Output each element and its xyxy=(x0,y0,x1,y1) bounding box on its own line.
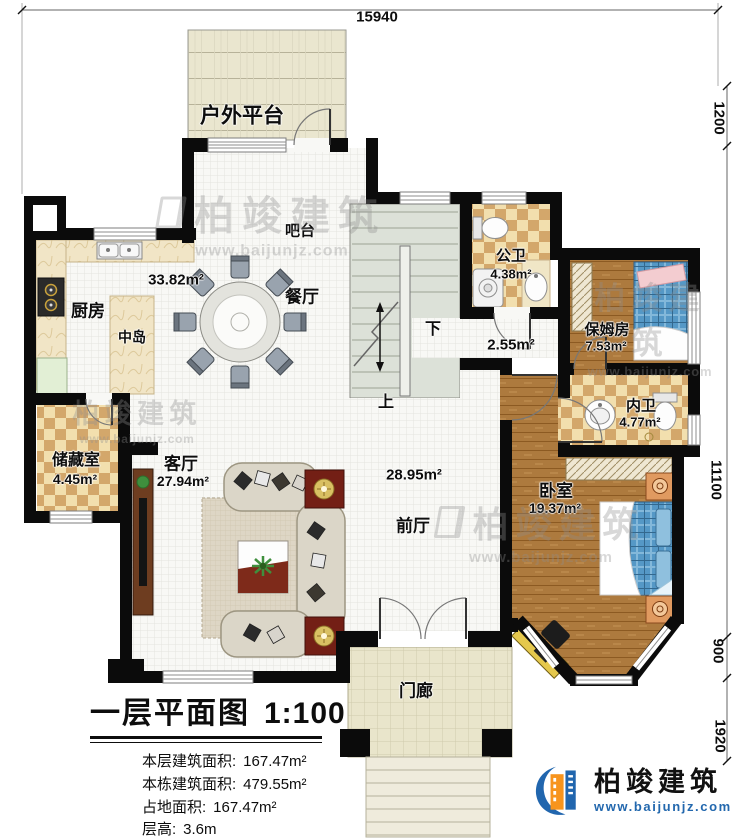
cabinet-plant xyxy=(137,476,149,488)
floor-bar xyxy=(194,148,366,243)
stat-value: 167.47m² xyxy=(213,799,276,816)
room-label-kitchen: 厨房 xyxy=(71,303,105,320)
room-label-bedroom: 卧室 xyxy=(539,483,573,500)
sofa-bottom xyxy=(221,611,311,657)
washbasin-inner xyxy=(585,400,615,430)
kitchen-sink xyxy=(97,242,142,259)
dimension-right-main: 11100 xyxy=(709,460,724,500)
room-label-public-bath: 公卫 xyxy=(496,249,526,264)
area-label-foyer: 28.95m² xyxy=(386,468,442,483)
stair-label-down: 下 xyxy=(425,322,441,338)
room-label-dining: 餐厅 xyxy=(285,289,319,306)
area-label-hall: 2.55m² xyxy=(487,338,535,353)
dimension-right-bottom: 1920 xyxy=(713,719,728,752)
stat-label: 本栋建筑面积: xyxy=(142,776,236,793)
title-block: 一层平面图1:100 本层建筑面积:167.47m² 本栋建筑面积:479.55… xyxy=(90,688,420,839)
stat-label: 占地面积: xyxy=(142,799,206,816)
plan-scale: 1:100 xyxy=(264,697,346,730)
bedroom-bed xyxy=(600,502,676,595)
dimension-right-lower: 900 xyxy=(711,638,726,663)
room-label-nanny: 保姆房 xyxy=(584,323,629,338)
area-label-inner-bath: 4.77m² xyxy=(619,416,660,429)
company-logo-icon xyxy=(530,762,586,820)
area-label-nanny: 7.53m² xyxy=(585,340,626,353)
stat-row: 本栋建筑面积:479.55m² xyxy=(142,774,420,797)
company-website: www.baijunjz.com xyxy=(594,799,732,814)
plan-statistics: 本层建筑面积:167.47m² 本栋建筑面积:479.55m² 占地面积:167… xyxy=(142,751,420,839)
dimension-top: 15940 xyxy=(356,10,398,25)
stat-row: 层高:3.6m xyxy=(142,819,420,839)
area-label-living: 27.94m² xyxy=(157,474,209,488)
floor-plan-page: 柏竣建筑 www.baijunjz.com 柏竣建筑 www.baijunjz.… xyxy=(0,0,750,839)
room-label-living: 客厅 xyxy=(164,456,198,473)
kitchen-island xyxy=(110,296,154,394)
tv xyxy=(139,498,147,586)
stat-value: 3.6m xyxy=(183,821,216,838)
room-label-storage: 储藏室 xyxy=(52,453,100,469)
floor-hall-2 xyxy=(460,370,500,398)
coffee-table xyxy=(238,541,288,593)
stove xyxy=(38,278,64,316)
area-label-open-area: 33.82m² xyxy=(148,273,204,288)
room-label-inner-bath: 内卫 xyxy=(626,399,656,414)
stat-label: 本层建筑面积: xyxy=(142,753,236,770)
stat-value: 479.55m² xyxy=(243,776,306,793)
dimension-right-top: 1200 xyxy=(712,101,727,134)
company-name: 柏竣建筑 xyxy=(594,768,732,798)
stat-value: 167.47m² xyxy=(243,753,306,770)
area-label-bedroom: 19.37m² xyxy=(529,501,581,515)
title-underline-thin xyxy=(90,742,322,743)
room-label-foyer: 前厅 xyxy=(396,518,430,535)
toilet-public xyxy=(473,217,508,239)
area-label-public-bath: 4.38m² xyxy=(490,268,531,281)
stat-row: 占地面积:167.47m² xyxy=(142,797,420,820)
plan-title: 一层平面图 xyxy=(90,697,250,730)
stat-row: 本层建筑面积:167.47m² xyxy=(142,751,420,774)
stat-label: 层高: xyxy=(142,821,176,838)
side-table-top xyxy=(305,470,344,508)
stair-label-up: 上 xyxy=(378,395,394,411)
title-underline xyxy=(90,736,322,739)
company-logo: 柏竣建筑 www.baijunjz.com xyxy=(530,762,732,820)
room-label-outdoor-platform: 户外平台 xyxy=(200,106,284,127)
room-label-island: 中岛 xyxy=(118,330,146,344)
room-label-bar: 吧台 xyxy=(285,224,315,239)
area-label-storage: 4.45m² xyxy=(53,472,97,486)
nanny-bed xyxy=(634,262,688,360)
